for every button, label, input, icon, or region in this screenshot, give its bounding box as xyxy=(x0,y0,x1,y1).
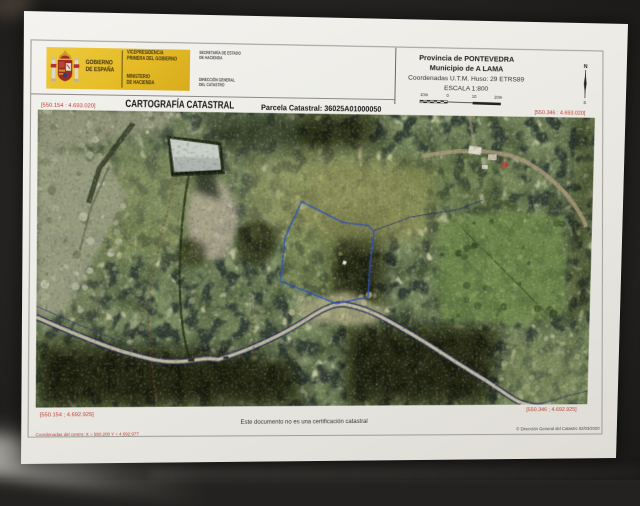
svg-text:20m: 20m xyxy=(494,95,503,100)
svg-text:S: S xyxy=(583,100,586,105)
svg-text:10: 10 xyxy=(472,94,477,99)
svg-text:0: 0 xyxy=(446,93,449,98)
svg-text:N: N xyxy=(584,64,588,70)
svg-text:10m: 10m xyxy=(420,92,429,97)
